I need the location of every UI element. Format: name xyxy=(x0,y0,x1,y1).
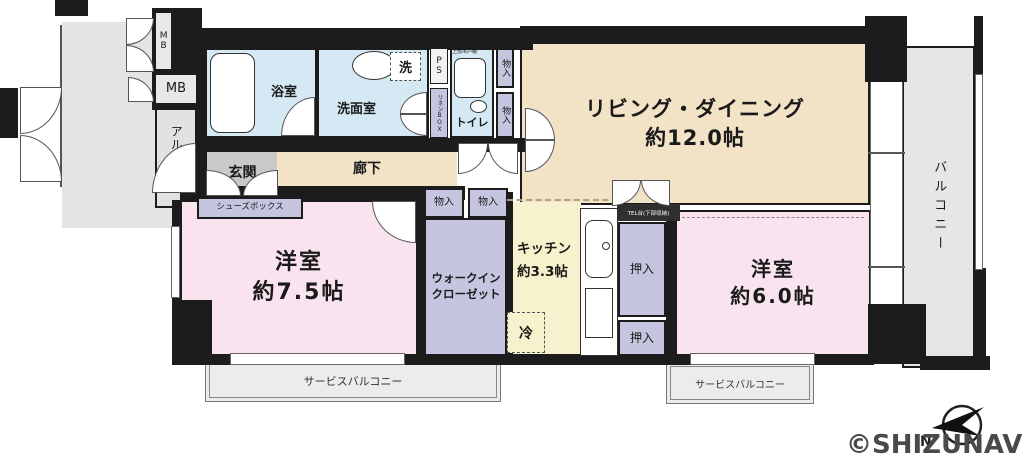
wall-balcony-top-block xyxy=(865,16,907,82)
window-tick xyxy=(868,266,905,268)
kitchen-living-dashed-line xyxy=(507,199,618,201)
wic-storage-1: 物入 xyxy=(424,188,464,218)
wall-bedroom1-wic xyxy=(418,200,424,358)
corridor: 廊下 xyxy=(277,150,457,188)
service-balcony-left: サービスバルコニー xyxy=(205,360,501,402)
service-balcony-right-inner: サービスバルコニー xyxy=(670,366,810,400)
hall-storage-2: 物入 xyxy=(496,92,514,138)
toilet-icon-tank xyxy=(454,58,486,98)
tel-stand: TEL台(下部収納) xyxy=(617,204,680,221)
service-balcony-left-inner: サービスバルコニー xyxy=(209,364,497,398)
linen-box: リネンBOX xyxy=(430,88,448,138)
wall-balcony-right-upper xyxy=(974,16,983,74)
bedroom1-left-window xyxy=(171,226,180,298)
oshiire-2: 押入 xyxy=(618,320,666,356)
shoes-box: シューズボックス xyxy=(197,197,303,219)
bedroom2-bottom-window xyxy=(690,353,815,365)
bedroom2-curtain-dashed-line xyxy=(682,217,864,218)
wall-balcony-right-lower xyxy=(973,268,986,370)
wall-kitchen-bedroom2 xyxy=(666,204,675,356)
corridor-living-door-arc-left xyxy=(458,143,488,174)
corridor-living-door-arc-right xyxy=(488,143,518,174)
oshiire-1: 押入 xyxy=(618,222,666,317)
toilet-upper-cabinet-label: 上部吊戸棚 xyxy=(452,48,492,55)
kitchen-faucet-icon xyxy=(602,242,610,250)
wic-storage-2: 物入 xyxy=(468,188,508,218)
wall-bedroom1-corner-block xyxy=(172,300,212,356)
corner-mark-top xyxy=(55,0,88,16)
laundry-space: 洗 xyxy=(390,52,421,81)
bedroom2: 洋室 約6.0帖 xyxy=(675,210,871,356)
wall-balcony-bottom-block xyxy=(868,304,926,364)
entrance-outer-door-arc-upper xyxy=(20,87,62,134)
wall-sanitary-top xyxy=(183,28,533,50)
bedroom1-bottom-window xyxy=(230,353,405,365)
floorplan-canvas: MB MB アルコーブ 浴室 洗面室 洗 PS リネンBOX トイレ 上部吊戸棚… xyxy=(0,0,1024,461)
balcony-rail-window xyxy=(975,74,983,270)
living-balcony-window xyxy=(870,78,903,304)
common-corridor-wall-line xyxy=(60,25,62,187)
hall-storage-1: 物入 xyxy=(496,48,514,88)
walk-in-closet: ウォークイン クローゼット xyxy=(424,218,508,356)
watermark: ©SHIZUNAVI xyxy=(846,430,1024,460)
fridge-space: 冷 xyxy=(507,312,545,353)
kitchen-sink-icon xyxy=(585,220,613,278)
living-dining: リビング・ダイニング 約12.0帖 xyxy=(520,42,870,205)
toilet-icon-bowl xyxy=(470,100,487,113)
pipe-space: PS xyxy=(430,48,448,84)
window-tick xyxy=(868,152,905,154)
kitchen-stove-icon xyxy=(585,288,613,338)
entrance-outer-door-arc-lower xyxy=(20,135,62,182)
meter-box-top: MB xyxy=(155,12,172,70)
bathtub xyxy=(210,53,255,133)
corner-mark-left xyxy=(0,88,18,138)
service-balcony-right: サービスバルコニー xyxy=(666,362,814,404)
meter-box: MB xyxy=(155,74,197,104)
wall-living-top xyxy=(520,26,872,42)
